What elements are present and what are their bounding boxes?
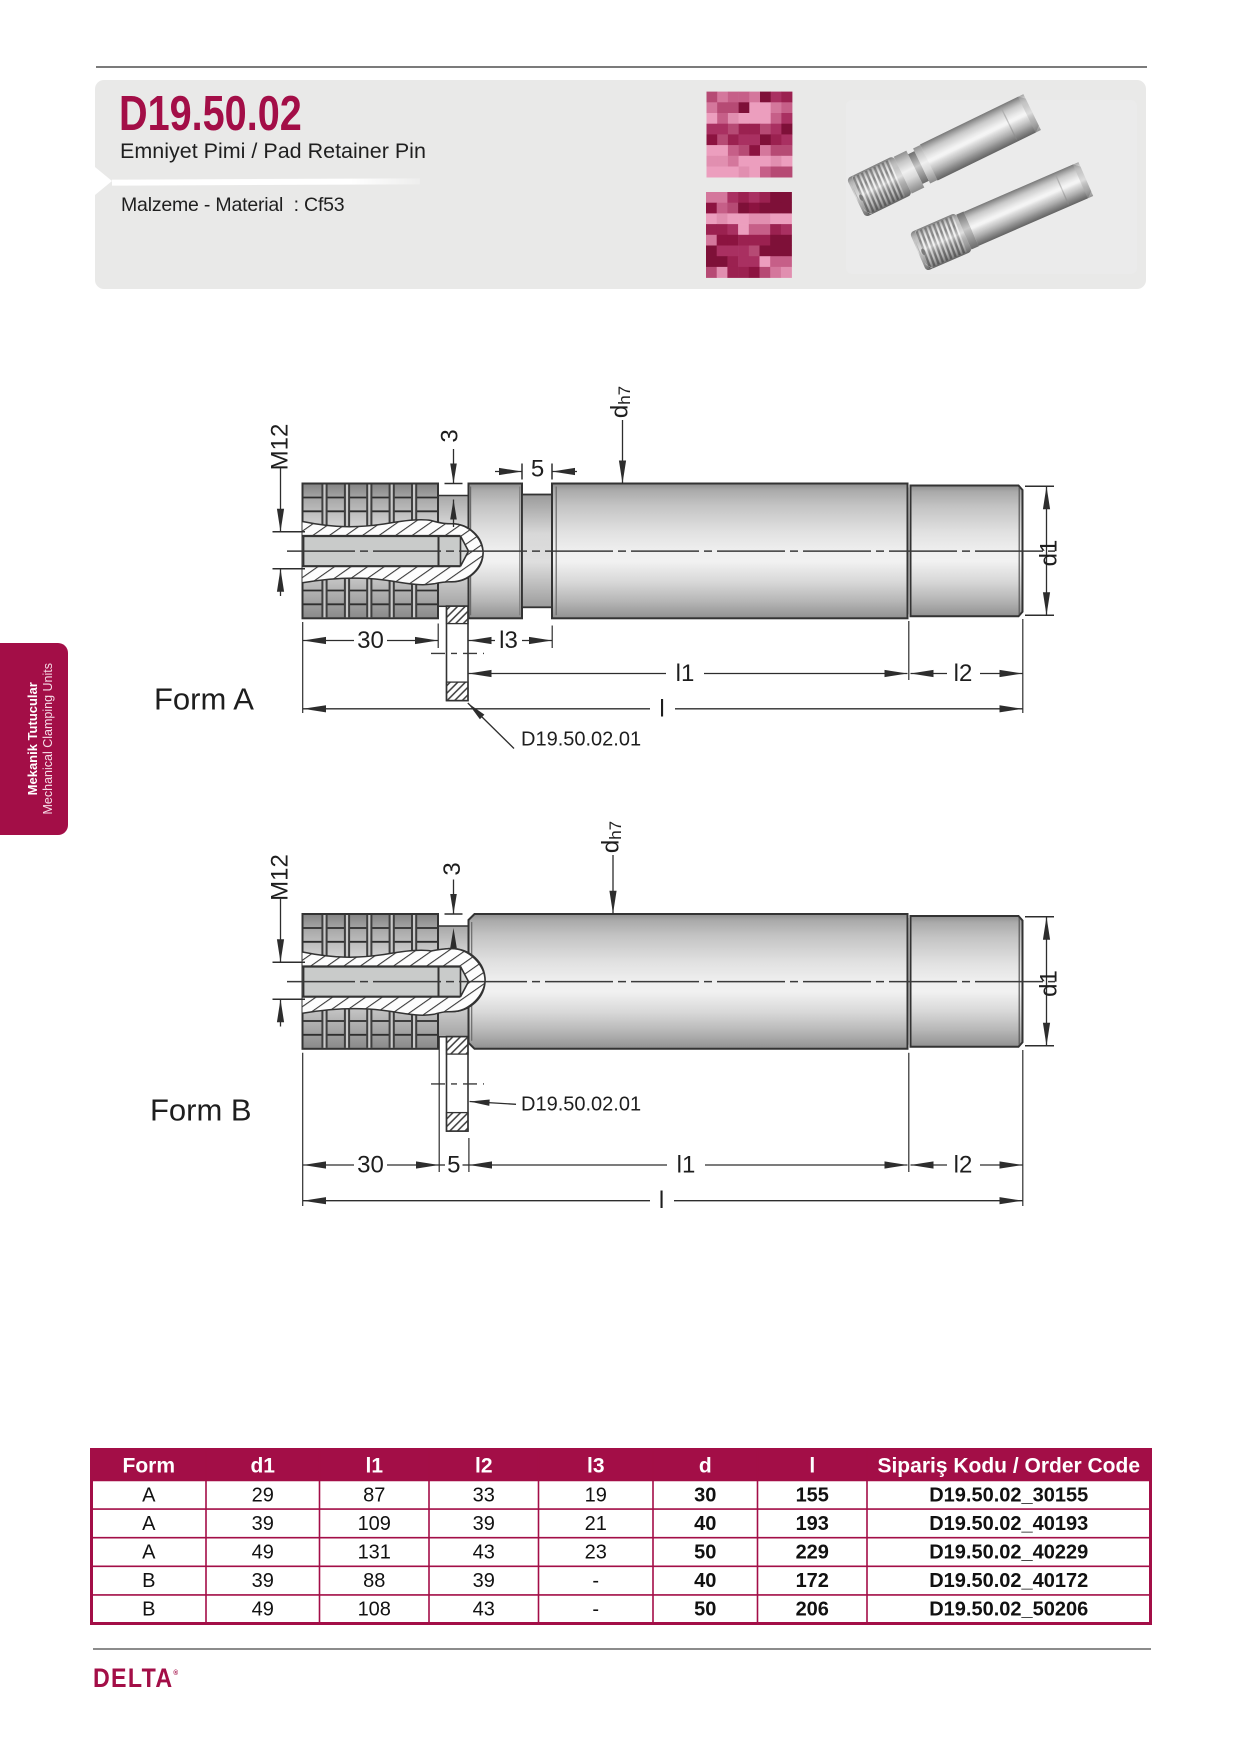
svg-text:l1: l1 xyxy=(676,660,695,687)
svg-text:39: 39 xyxy=(473,1570,495,1592)
svg-text:l1: l1 xyxy=(677,1152,696,1179)
svg-text:49: 49 xyxy=(252,1599,274,1621)
svg-text:131: 131 xyxy=(358,1542,391,1564)
svg-text:87: 87 xyxy=(363,1484,385,1506)
svg-text:155: 155 xyxy=(796,1484,829,1506)
svg-text:43: 43 xyxy=(473,1599,495,1621)
svg-text:21: 21 xyxy=(585,1513,607,1535)
svg-text:39: 39 xyxy=(252,1570,274,1592)
svg-text:l: l xyxy=(809,1455,815,1478)
svg-text:172: 172 xyxy=(796,1570,829,1592)
svg-text:229: 229 xyxy=(796,1542,829,1564)
svg-text:dh7: dh7 xyxy=(607,386,634,418)
svg-text:5: 5 xyxy=(447,1152,460,1179)
svg-text:l3: l3 xyxy=(587,1455,605,1478)
svg-text:39: 39 xyxy=(473,1513,495,1535)
svg-text:50: 50 xyxy=(694,1542,716,1564)
svg-text:39: 39 xyxy=(252,1513,274,1535)
svg-text:l: l xyxy=(659,695,664,722)
svg-text:29: 29 xyxy=(252,1484,274,1506)
svg-text:3: 3 xyxy=(439,862,466,875)
svg-text:23: 23 xyxy=(585,1542,607,1564)
svg-text:d: d xyxy=(699,1455,712,1478)
svg-text:108: 108 xyxy=(358,1599,391,1621)
svg-text:l: l xyxy=(659,1187,664,1214)
svg-text:l3: l3 xyxy=(499,627,518,654)
svg-text:A: A xyxy=(142,1513,156,1535)
svg-text:5: 5 xyxy=(531,456,544,483)
svg-text:3: 3 xyxy=(437,429,464,442)
svg-text:B: B xyxy=(142,1599,155,1621)
svg-text:206: 206 xyxy=(796,1599,829,1621)
svg-text:33: 33 xyxy=(473,1484,495,1506)
svg-text:D19.50.02_40193: D19.50.02_40193 xyxy=(929,1513,1088,1535)
svg-text:B: B xyxy=(142,1570,155,1592)
svg-text:l1: l1 xyxy=(365,1455,383,1478)
svg-text:109: 109 xyxy=(358,1513,391,1535)
svg-text:d1: d1 xyxy=(250,1455,275,1478)
svg-text:M12: M12 xyxy=(267,854,294,901)
svg-text:dh7: dh7 xyxy=(598,821,625,853)
svg-text:l2: l2 xyxy=(475,1455,493,1478)
svg-text:193: 193 xyxy=(796,1513,829,1535)
svg-text:30: 30 xyxy=(694,1484,716,1506)
svg-text:A: A xyxy=(142,1542,156,1564)
svg-text:Form B: Form B xyxy=(150,1093,252,1128)
svg-text:d1: d1 xyxy=(1036,970,1063,997)
svg-text:88: 88 xyxy=(363,1570,385,1592)
svg-text:-: - xyxy=(592,1599,599,1621)
svg-text:D19.50.02_50206: D19.50.02_50206 xyxy=(929,1599,1088,1621)
svg-text:-: - xyxy=(592,1570,599,1592)
svg-text:43: 43 xyxy=(473,1542,495,1564)
svg-text:l2: l2 xyxy=(954,1152,973,1179)
svg-text:Sipariş Kodu / Order Code: Sipariş Kodu / Order Code xyxy=(877,1455,1140,1478)
svg-text:50: 50 xyxy=(694,1599,716,1621)
svg-text:19: 19 xyxy=(585,1484,607,1506)
svg-text:D19.50.02_30155: D19.50.02_30155 xyxy=(929,1484,1088,1506)
svg-text:Form: Form xyxy=(123,1455,176,1478)
svg-text:A: A xyxy=(142,1484,156,1506)
svg-text:l2: l2 xyxy=(954,660,973,687)
svg-text:d1: d1 xyxy=(1036,540,1063,567)
svg-text:40: 40 xyxy=(694,1570,716,1592)
svg-text:49: 49 xyxy=(252,1542,274,1564)
svg-text:30: 30 xyxy=(357,627,384,654)
svg-text:40: 40 xyxy=(694,1513,716,1535)
svg-text:D19.50.02_40229: D19.50.02_40229 xyxy=(929,1542,1088,1564)
svg-text:30: 30 xyxy=(357,1152,384,1179)
svg-text:D19.50.02.01: D19.50.02.01 xyxy=(521,1094,641,1116)
svg-text:D19.50.02_40172: D19.50.02_40172 xyxy=(929,1570,1088,1592)
svg-text:M12: M12 xyxy=(267,424,294,471)
svg-text:D19.50.02.01: D19.50.02.01 xyxy=(521,729,641,751)
svg-text:Form A: Form A xyxy=(154,682,254,717)
